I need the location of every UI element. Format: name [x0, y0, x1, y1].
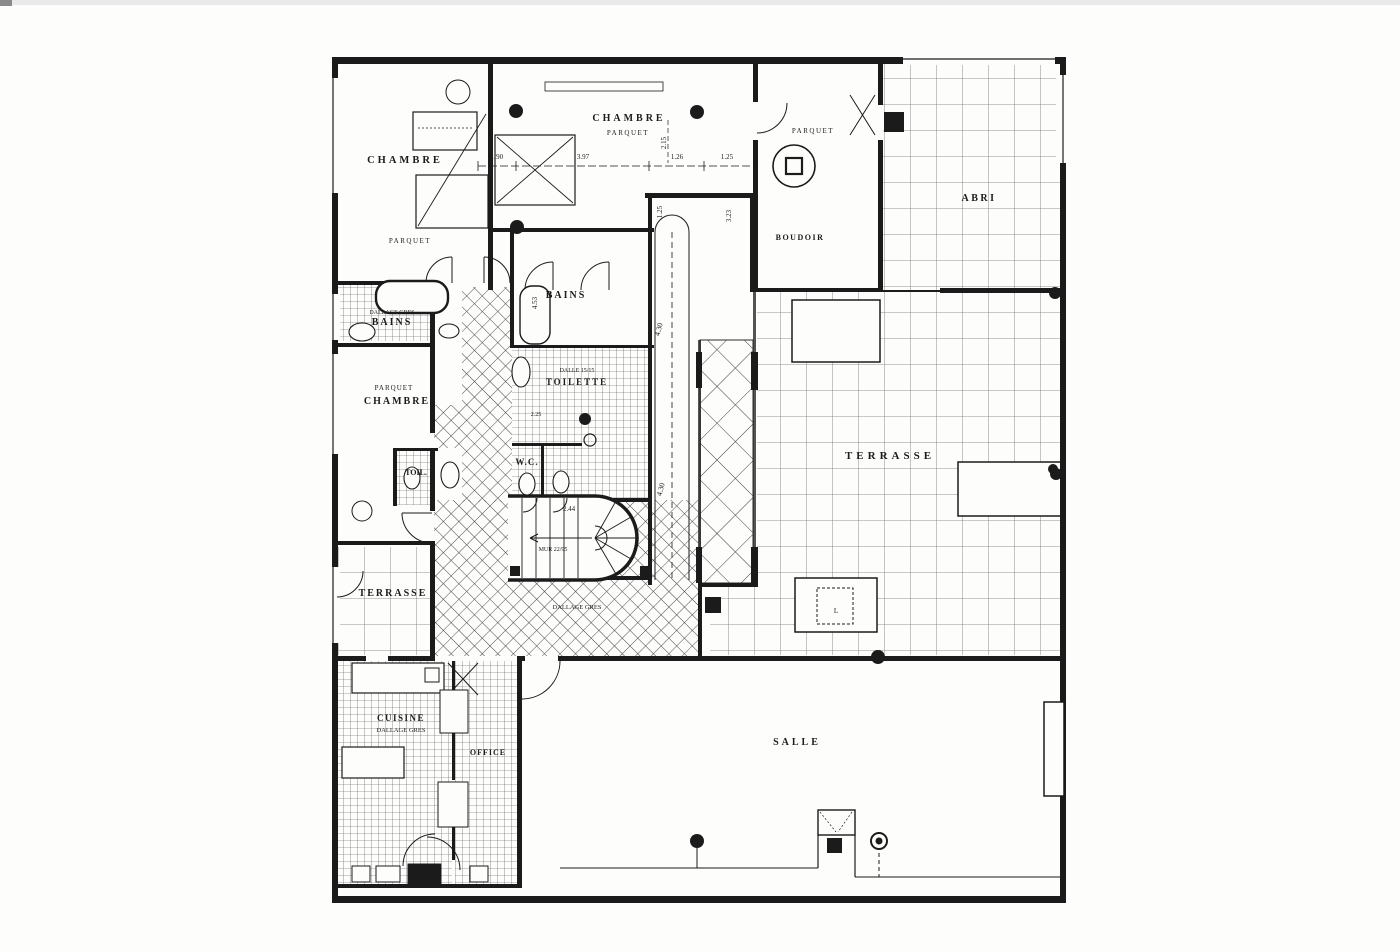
room-label-wc: W.C.: [515, 457, 538, 467]
flue-block: [705, 597, 721, 613]
note-parquet-w: PARQUET: [375, 384, 414, 392]
note-parquet-n: PARQUET: [607, 129, 649, 137]
dim-430a: 4.30: [653, 322, 665, 337]
room-label-abri: ABRI: [961, 193, 996, 204]
dim-225: 2.25: [531, 412, 542, 418]
scanned-floor-plan-page: CHAMBRE PARQUET CHAMBRE PARQUET BOUDOIR …: [0, 0, 1400, 952]
fireplace: [818, 810, 855, 835]
sink: [439, 324, 459, 338]
scan-edge-artifacts: [0, 0, 1400, 6]
note-bains-w: DALLAGE GRES: [369, 310, 414, 316]
kitchen-sink: [425, 668, 439, 682]
room-label-terrasse-w: TERRASSE: [359, 588, 428, 599]
room-label-terrasse-e: TERRASSE: [845, 450, 935, 462]
room-label-chambre-n: CHAMBRE: [592, 113, 665, 124]
salle-window-bay: [1044, 702, 1064, 796]
dim-190: 1.90: [491, 153, 504, 161]
salle-features: [560, 810, 1060, 877]
dim-126: 1.26: [671, 153, 684, 161]
dim-323: 3.23: [725, 209, 733, 222]
wc-bowl: [553, 471, 569, 493]
basin: [446, 80, 470, 104]
stove: [408, 864, 441, 884]
washstand-basin: [786, 158, 802, 174]
dim-430b: 4.30: [655, 482, 667, 497]
stool: [352, 501, 372, 521]
wc-bowl: [441, 462, 459, 488]
room-label-office: OFFICE: [470, 748, 506, 757]
wc-bowl: [519, 473, 535, 495]
kitchen-table: [342, 747, 404, 778]
appliance: [352, 866, 370, 882]
room-label-chambre-nw: CHAMBRE: [367, 155, 443, 166]
room-label-chambre-w: CHAMBRE: [364, 396, 430, 407]
room-label-toilette: TOILETTE: [546, 377, 608, 387]
note-parquet-nw: PARQUET: [389, 237, 431, 245]
appliance: [376, 866, 400, 882]
terrace-bench: [958, 462, 1062, 516]
terrace-table: [795, 578, 877, 632]
dim-125b: 1.25: [656, 205, 664, 218]
bed: [416, 175, 488, 228]
dim-453: 4.53: [531, 296, 539, 309]
appliance: [470, 866, 488, 882]
label-table-l: L: [834, 607, 838, 615]
bidet: [512, 357, 530, 387]
skylight-opening: [792, 300, 880, 362]
note-stair-mur: MUR 22/95: [539, 547, 568, 553]
pantry-cabinet: [440, 690, 468, 733]
room-label-boudoir: BOUDOIR: [776, 233, 825, 242]
note-parquet-boudoir: PARQUET: [792, 127, 834, 135]
room-label-bains-c: BAINS: [546, 290, 587, 301]
dim-215: 2.15: [660, 136, 668, 149]
room-label-bains-w: BAINS: [372, 317, 413, 328]
room-label-salle: SALLE: [773, 737, 821, 748]
note-cuisine: DALLAGE GRES: [377, 727, 426, 734]
pantry-cabinet: [438, 782, 468, 827]
dim-397: 3.97: [577, 153, 590, 161]
note-toilette: DALLE 15/15: [560, 368, 595, 374]
dim-125a: 1.25: [721, 153, 734, 161]
ramp-hatch-paving: [700, 340, 753, 583]
note-hall-paving: DALLAGE GRES: [553, 604, 602, 611]
room-label-cuisine: CUISINE: [377, 713, 425, 723]
chimney-block: [884, 112, 904, 132]
room-label-toil: TOIL.: [405, 468, 427, 477]
floor-plan-drawing: CHAMBRE PARQUET CHAMBRE PARQUET BOUDOIR …: [0, 0, 1400, 952]
dim-244: 2.44: [563, 505, 576, 513]
bathtub: [376, 281, 448, 313]
